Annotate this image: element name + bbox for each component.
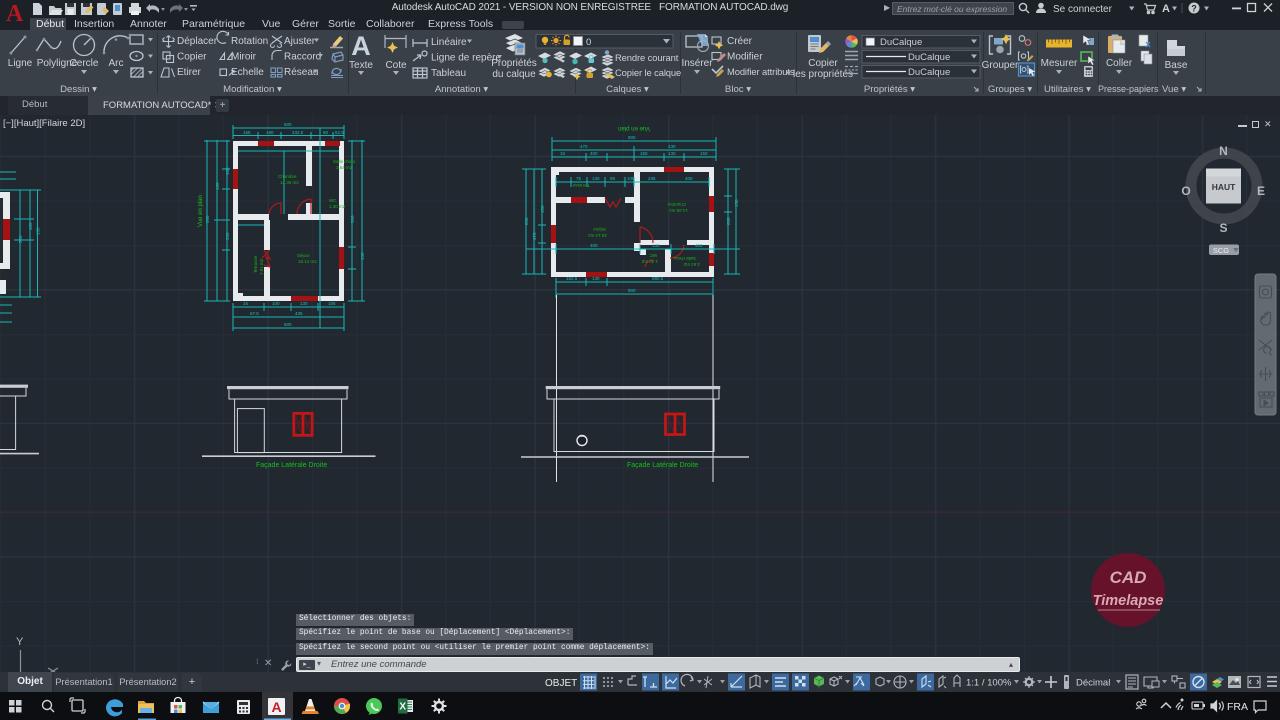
svg-text:Ajuster: Ajuster [284,36,316,47]
svg-text:150: 150 [540,205,545,213]
svg-text:600: 600 [726,217,731,225]
svg-text:900: 900 [628,135,636,140]
svg-text:Façade Latérale Droite: Façade Latérale Droite [627,462,698,469]
svg-text:130: 130 [734,199,739,207]
svg-text:Raccord: Raccord [284,52,321,63]
svg-text:130: 130 [360,252,365,260]
svg-text:Insérer: Insérer [681,58,713,69]
svg-text:60: 60 [323,130,329,135]
svg-text:130: 130 [668,151,676,156]
svg-text:Séjour: Séjour [297,253,311,258]
svg-text:Terrasse: Terrasse [253,255,258,273]
svg-text:Copier: Copier [808,58,838,69]
svg-text:400: 400 [590,243,598,248]
svg-text:Ligne: Ligne [8,58,33,69]
svg-text:1.30 m2: 1.30 m2 [641,259,658,264]
svg-text:0: 0 [586,37,591,48]
svg-text:Terrasse: Terrasse [572,183,590,188]
svg-text:130: 130 [652,243,660,248]
svg-text:1.30 m2: 1.30 m2 [329,204,346,209]
svg-text:Base: Base [1165,60,1188,71]
svg-text:Linéaire: Linéaire [431,37,467,48]
svg-text:Cercle: Cercle [70,58,99,69]
svg-text:Modifier: Modifier [727,52,763,63]
svg-text:435: 435 [295,311,303,316]
svg-text:Coller: Coller [1106,58,1133,69]
svg-text:100: 100 [272,301,280,306]
svg-text:Cote: Cote [385,60,407,71]
svg-text:190: 190 [266,130,274,135]
svg-text:Vue en plan: Vue en plan [198,195,204,227]
svg-text:DuCalque: DuCalque [880,37,922,48]
svg-text:600: 600 [284,122,292,127]
svg-text:Déplacer: Déplacer [177,36,218,47]
svg-text:Echelle: Echelle [231,67,264,78]
svg-text:CAD: CAD [1110,568,1147,587]
svg-text:Vue en plan: Vue en plan [618,125,650,131]
svg-text:S: S [1219,221,1227,235]
svg-text:18.14 m2: 18.14 m2 [588,233,607,238]
svg-text:Rendre courant: Rendre courant [615,52,679,63]
svg-text:150: 150 [700,151,708,156]
svg-text:400: 400 [590,151,598,156]
svg-text:162.5: 162.5 [566,276,578,281]
svg-text:130: 130 [592,176,600,181]
svg-text:165: 165 [243,130,251,135]
svg-text:900: 900 [628,288,636,293]
svg-text:Décimal: Décimal [1076,678,1110,689]
svg-text:les propriétés: les propriétés [793,69,853,80]
svg-text:400: 400 [215,182,220,190]
svg-text:Rotation: Rotation [231,36,268,47]
svg-text:FRA: FRA [1227,701,1248,713]
svg-text:600: 600 [524,217,529,225]
svg-text:Propriétés: Propriétés [491,58,537,69]
svg-text:DuCalque: DuCalque [908,52,950,63]
svg-text:470: 470 [580,144,588,149]
svg-text:A: A [1162,3,1170,15]
svg-text:430: 430 [668,144,676,149]
svg-text:Copier: Copier [177,52,207,63]
svg-text:A: A [271,699,281,715]
svg-text:Y: Y [16,636,24,648]
svg-text:?: ? [1191,4,1197,14]
svg-text:105: 105 [225,167,230,175]
svg-text:Façade Latérale Droite: Façade Latérale Droite [256,462,327,469]
svg-text:O: O [1181,184,1190,198]
svg-text:400: 400 [28,222,33,230]
svg-text:Miroir: Miroir [231,52,257,63]
svg-text:Grouper: Grouper [982,60,1019,71]
svg-text:Salle d'eau: Salle d'eau [673,256,696,261]
svg-text:130: 130 [592,276,600,281]
svg-text:330: 330 [225,232,230,240]
svg-text:18.14 m2: 18.14 m2 [298,259,317,264]
svg-text:HAUT: HAUT [1212,182,1236,192]
svg-text:Etirer: Etirer [177,67,202,78]
svg-text:14.36 m2: 14.36 m2 [669,208,688,213]
svg-text:Créer: Créer [727,36,753,47]
svg-text:Chambre: Chambre [667,202,686,207]
svg-text:7.91 m2: 7.91 m2 [259,258,264,275]
svg-text:SCG: SCG [1213,246,1229,255]
svg-text:3.64 m2: 3.64 m2 [336,165,353,170]
svg-text:E: E [1257,184,1265,198]
svg-text:WC: WC [329,198,337,203]
svg-text:500: 500 [350,215,355,223]
svg-text:du calque: du calque [492,69,536,80]
svg-text:Réseau: Réseau [284,67,318,78]
svg-text:600: 600 [284,322,292,327]
svg-text:Timelapse: Timelapse [1093,593,1164,609]
svg-text:400: 400 [685,176,693,181]
svg-text:235: 235 [648,176,656,181]
svg-text:Modifier attributs: Modifier attributs [727,66,795,77]
svg-text:Arc: Arc [109,58,124,69]
svg-text:150: 150 [640,151,648,156]
svg-text:DuCalque: DuCalque [908,67,950,78]
svg-text:232.5: 232.5 [292,130,304,135]
svg-text:Chambre: Chambre [278,174,297,179]
svg-text:Mesurer: Mesurer [1041,58,1078,69]
svg-text:14.36 m2: 14.36 m2 [280,180,299,185]
svg-text:15: 15 [560,151,566,156]
svg-text:470: 470 [532,232,537,240]
svg-text:105: 105 [328,301,336,306]
svg-text:1:1 / 100%: 1:1 / 100% [966,678,1012,689]
svg-text:Tableau: Tableau [431,68,466,79]
svg-text:15: 15 [243,301,249,306]
svg-text:590.5: 590.5 [652,276,664,281]
svg-text:75: 75 [576,176,582,181]
svg-text:Copier le calque: Copier le calque [615,67,681,78]
svg-text:A: A [351,31,371,61]
svg-text:WC: WC [649,253,657,258]
svg-text:Texte: Texte [349,60,373,71]
svg-text:Salle d'eau: Salle d'eau [333,159,356,164]
svg-text:N: N [1219,144,1228,158]
svg-text:3.64 m2: 3.64 m2 [683,262,700,267]
svg-text:X: X [399,702,406,713]
svg-text:95: 95 [610,176,616,181]
svg-text:500: 500 [205,215,210,223]
svg-text:105: 105 [627,176,635,181]
svg-text:67.5: 67.5 [250,311,259,316]
svg-text:500: 500 [18,235,23,243]
svg-text:OBJET: OBJET [545,678,577,689]
svg-text:400: 400 [695,243,703,248]
svg-text:Se connecter: Se connecter [1053,4,1113,15]
svg-text:Séjour: Séjour [592,227,606,232]
svg-text:130: 130 [36,227,41,235]
svg-text:52.5: 52.5 [335,130,344,135]
svg-text:130: 130 [300,301,308,306]
